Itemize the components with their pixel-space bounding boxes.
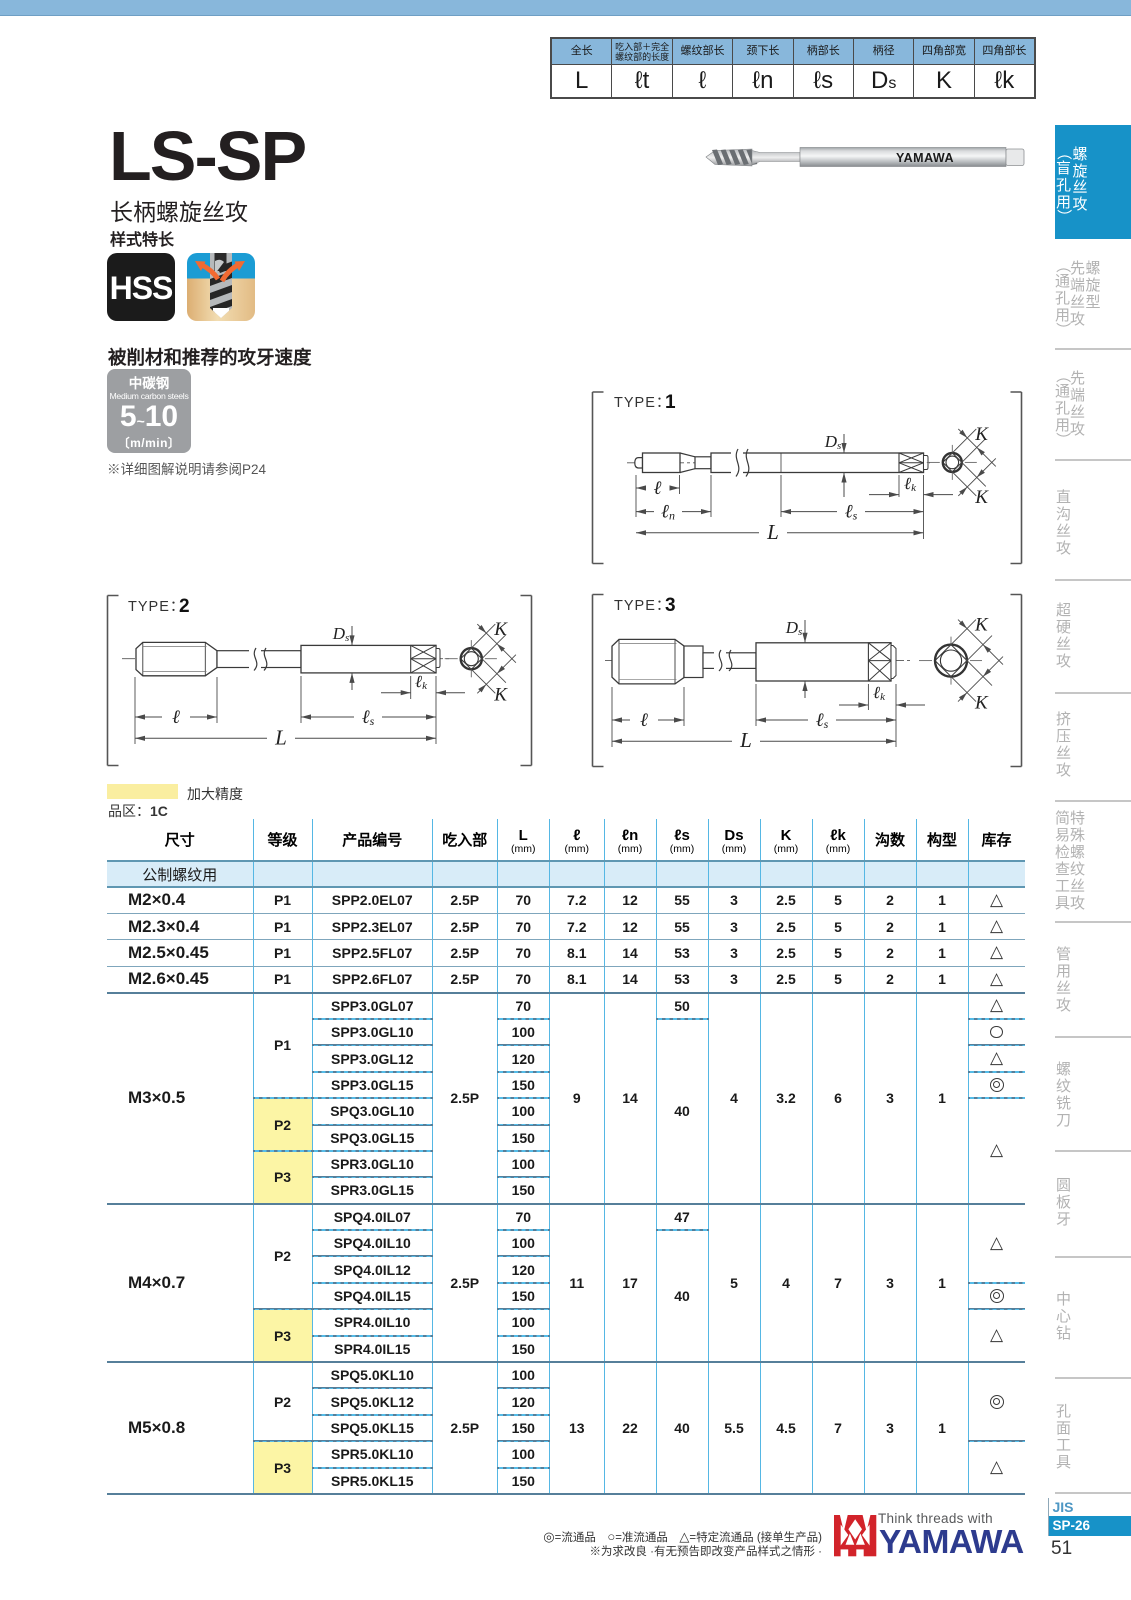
svg-text:ℓs: ℓs xyxy=(845,502,858,523)
svg-text:K: K xyxy=(974,487,989,508)
svg-text:ℓs: ℓs xyxy=(816,710,829,731)
svg-text:ℓk: ℓk xyxy=(873,683,886,703)
svg-text:L: L xyxy=(739,728,752,752)
svg-text:Ds: Ds xyxy=(332,624,350,644)
svg-text:TYPE：: TYPE： xyxy=(614,395,671,411)
svg-text:ℓn: ℓn xyxy=(661,502,675,523)
svg-text:Ds: Ds xyxy=(824,432,842,452)
svg-text:L: L xyxy=(274,725,287,749)
svg-text:K: K xyxy=(974,693,989,714)
svg-text:ℓk: ℓk xyxy=(415,672,428,692)
svg-text:1: 1 xyxy=(665,392,676,413)
svg-text:YAMAWA: YAMAWA xyxy=(896,151,954,165)
svg-text:K: K xyxy=(493,619,508,640)
svg-text:ℓk: ℓk xyxy=(904,474,917,494)
svg-text:ℓ: ℓ xyxy=(172,707,180,728)
svg-text:ℓ: ℓ xyxy=(654,478,662,499)
svg-text:TYPE：: TYPE： xyxy=(614,598,671,614)
svg-text:3: 3 xyxy=(665,595,676,616)
svg-text:2: 2 xyxy=(179,596,190,617)
svg-text:ℓ: ℓ xyxy=(640,710,648,731)
svg-text:TYPE：: TYPE： xyxy=(128,599,185,615)
svg-text:K: K xyxy=(493,684,508,705)
svg-text:K: K xyxy=(974,424,989,445)
svg-text:K: K xyxy=(974,615,989,636)
svg-text:Ds: Ds xyxy=(785,618,803,638)
svg-text:ℓs: ℓs xyxy=(362,707,375,728)
svg-text:L: L xyxy=(766,520,779,544)
